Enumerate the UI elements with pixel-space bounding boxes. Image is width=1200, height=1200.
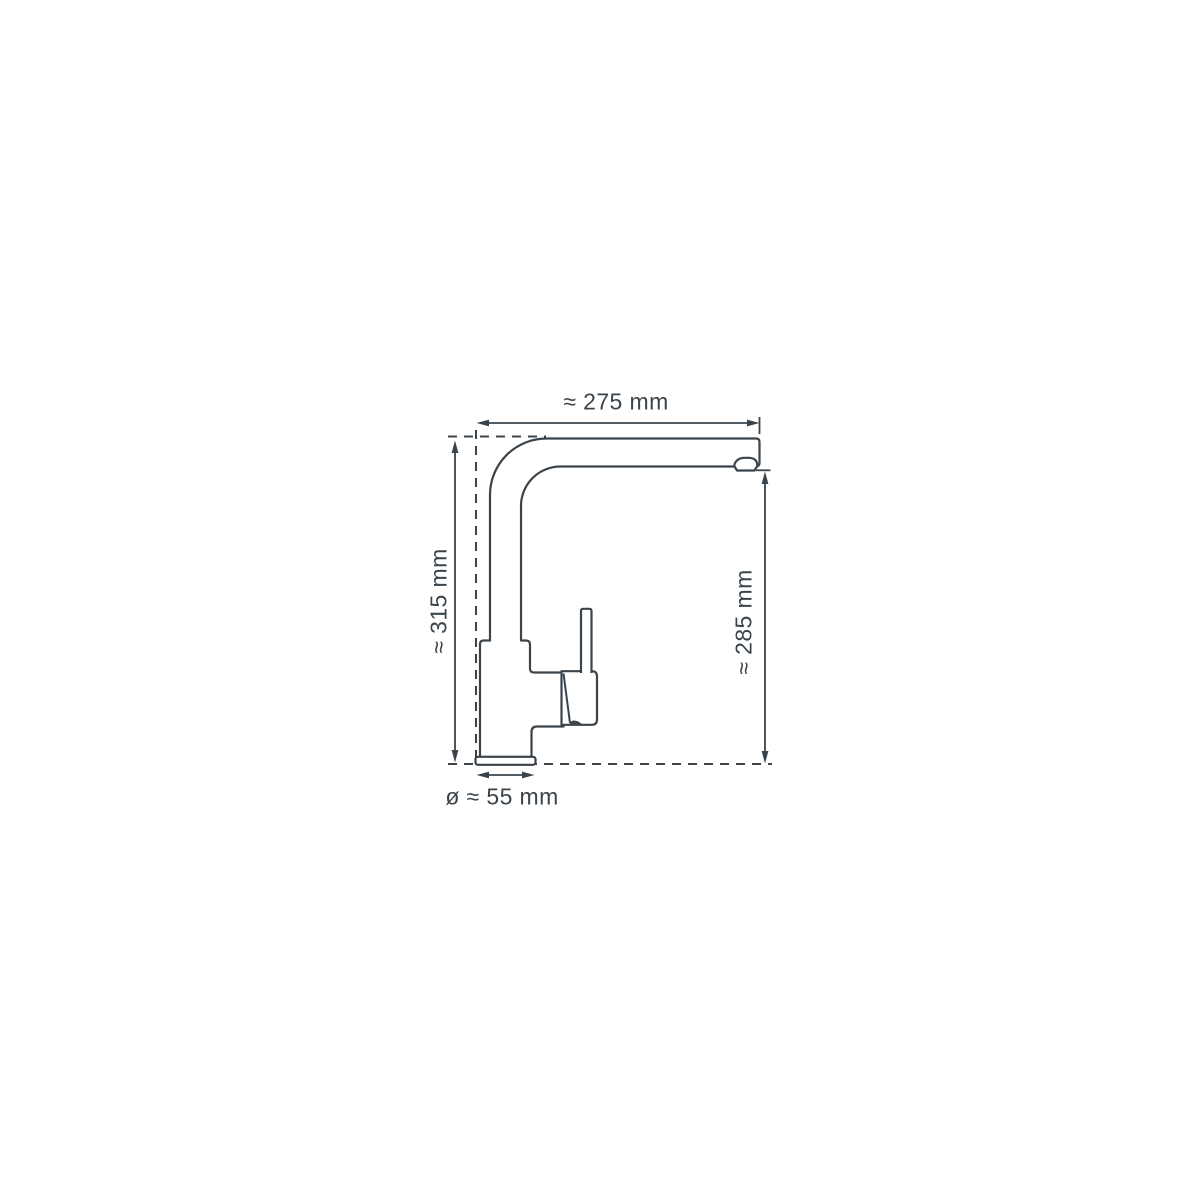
faucet-body-and-spout xyxy=(480,439,760,758)
dimension-base-diameter xyxy=(477,772,535,779)
faucet-dimension-diagram: ≈ 275 mm ≈ 315 mm ≈ 285 mm ø ≈ 55 mm xyxy=(0,0,1200,1200)
label-spout-reach: ≈ 275 mm xyxy=(563,389,668,416)
dimension-width-top xyxy=(477,417,760,434)
spout-aerator xyxy=(734,458,757,471)
faucet-outline xyxy=(476,439,760,765)
dimension-height-right xyxy=(756,470,771,763)
handle-lever xyxy=(581,609,592,673)
dimension-height-left xyxy=(452,441,459,763)
label-total-height: ≈ 315 mm xyxy=(426,548,453,653)
base-plate xyxy=(476,757,536,765)
label-spout-outlet-height: ≈ 285 mm xyxy=(731,569,758,674)
label-base-diameter: ø ≈ 55 mm xyxy=(445,784,558,811)
faucet-drawing xyxy=(0,0,1200,1200)
